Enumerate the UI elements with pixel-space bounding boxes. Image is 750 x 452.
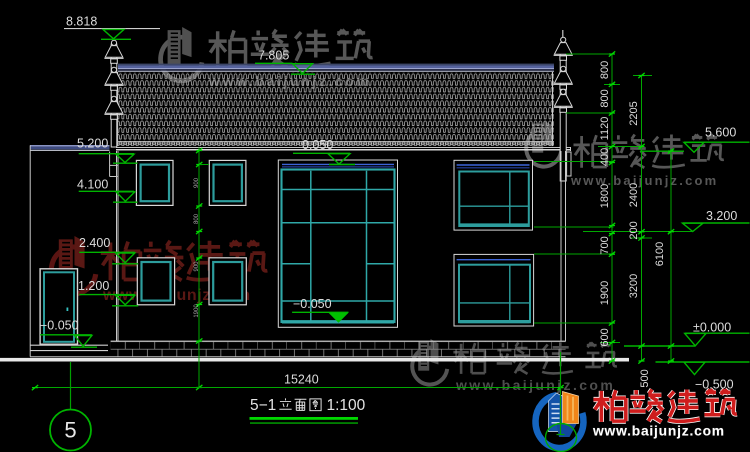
svg-text:200: 200	[628, 221, 640, 239]
svg-text:900: 900	[194, 177, 200, 188]
svg-text:1.200: 1.200	[78, 279, 109, 293]
svg-text:8.818: 8.818	[66, 15, 97, 29]
svg-text:5: 5	[64, 418, 76, 443]
svg-text:www.baijunjz.com: www.baijunjz.com	[455, 377, 615, 393]
svg-text:800: 800	[194, 213, 200, 224]
svg-text:5−1: 5−1	[250, 397, 276, 414]
svg-text:500: 500	[639, 369, 651, 387]
svg-text:www.baijunjz.com: www.baijunjz.com	[570, 173, 718, 188]
svg-text:2400: 2400	[628, 183, 640, 207]
svg-text:1900: 1900	[599, 281, 611, 305]
svg-text:2205: 2205	[628, 101, 640, 125]
svg-text:−0.050: −0.050	[293, 297, 332, 311]
svg-text:800: 800	[599, 89, 611, 107]
svg-text:900: 900	[194, 261, 200, 272]
svg-text:7.805: 7.805	[258, 49, 289, 63]
svg-text:−0.050: −0.050	[40, 319, 79, 333]
svg-text:700: 700	[599, 236, 611, 254]
svg-text:6100: 6100	[654, 242, 666, 266]
svg-text:1900: 1900	[194, 304, 200, 318]
svg-text:1120: 1120	[599, 117, 611, 141]
svg-text:1800: 1800	[599, 184, 611, 208]
svg-text:www.baijunjz.com: www.baijunjz.com	[592, 424, 725, 439]
svg-text:600: 600	[599, 328, 611, 346]
svg-text:4.100: 4.100	[77, 178, 108, 192]
svg-text:0.050: 0.050	[302, 138, 333, 152]
svg-text:5.600: 5.600	[705, 126, 736, 140]
svg-text:±0.000: ±0.000	[693, 321, 731, 335]
svg-text:15240: 15240	[284, 373, 319, 387]
svg-text:5.200: 5.200	[77, 137, 108, 151]
svg-text:3.200: 3.200	[706, 209, 737, 223]
svg-text:3200: 3200	[628, 274, 640, 298]
svg-text:1:100: 1:100	[327, 397, 366, 414]
svg-text:800: 800	[599, 61, 611, 79]
svg-text:400: 400	[599, 148, 611, 166]
svg-text:2.400: 2.400	[79, 236, 110, 250]
